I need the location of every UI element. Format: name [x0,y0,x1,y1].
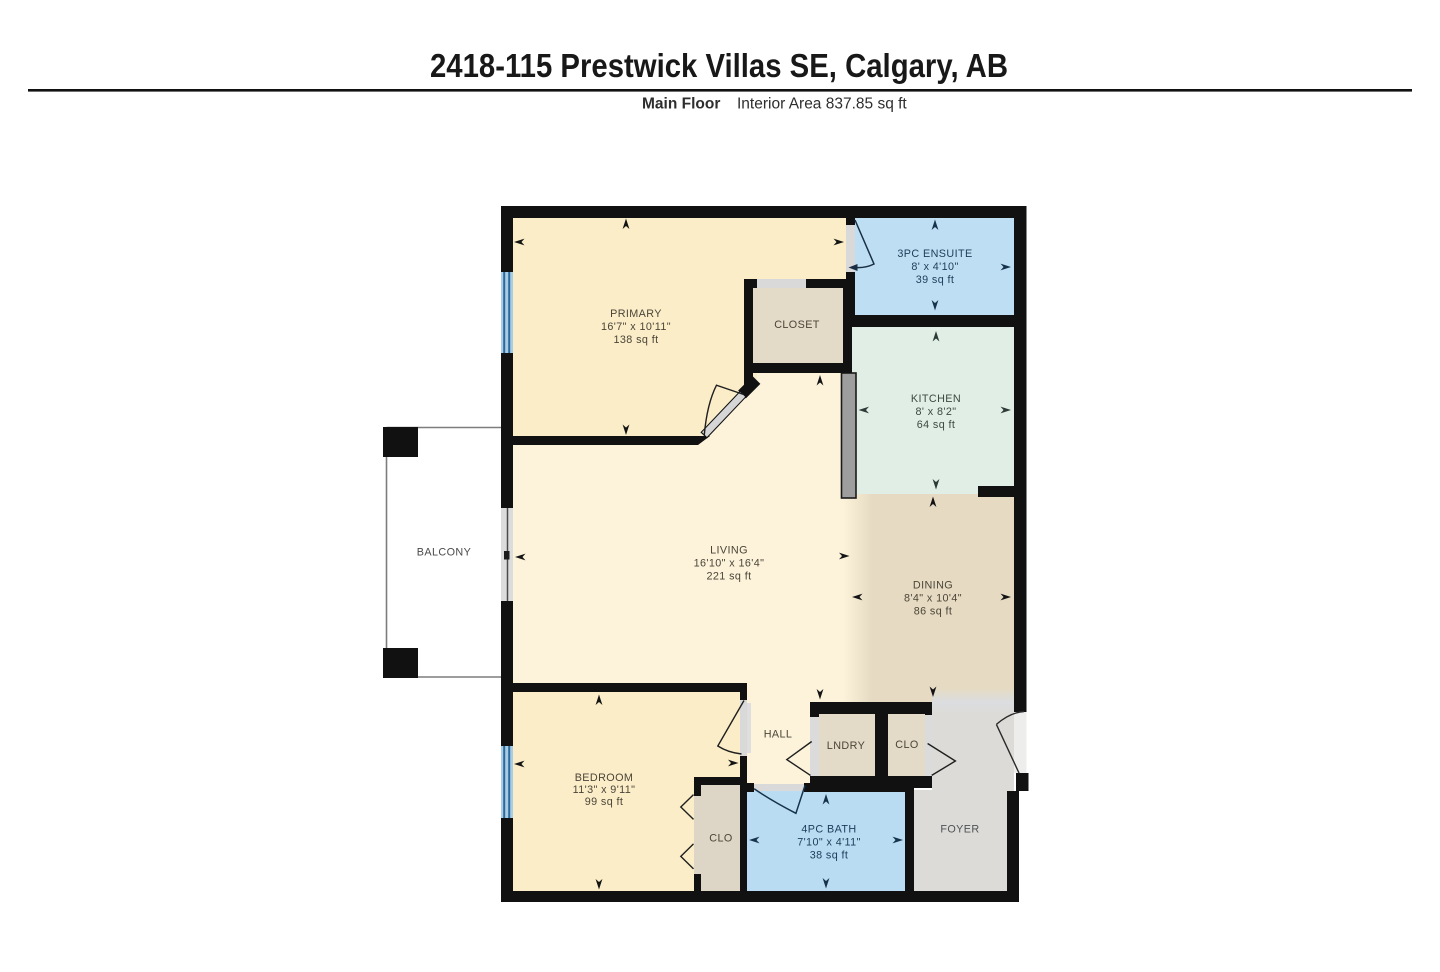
svg-text:BALCONY: BALCONY [417,547,471,559]
svg-text:39 sq ft: 39 sq ft [916,274,955,286]
svg-text:DINING: DINING [913,580,953,592]
svg-text:138 sq ft: 138 sq ft [613,334,658,346]
svg-text:HALL: HALL [764,729,793,741]
svg-text:38 sq ft: 38 sq ft [810,850,849,862]
svg-text:11'3" x 9'11": 11'3" x 9'11" [573,784,636,796]
svg-text:CLO: CLO [709,833,732,845]
svg-text:64 sq ft: 64 sq ft [917,419,956,431]
svg-text:2418-115 Prestwick Villas SE,: 2418-115 Prestwick Villas SE, Calgary, A… [430,47,1008,84]
svg-text:8' x 8'2": 8' x 8'2" [916,406,957,418]
svg-text:BEDROOM: BEDROOM [575,772,634,784]
svg-text:16'10" x 16'4": 16'10" x 16'4" [694,558,765,570]
svg-text:Interior Area 837.85 sq ft: Interior Area 837.85 sq ft [737,96,907,113]
svg-text:FOYER: FOYER [940,824,979,836]
svg-text:CLO: CLO [895,739,918,751]
svg-text:Main Floor: Main Floor [642,96,720,113]
svg-text:7'10" x 4'11": 7'10" x 4'11" [797,837,861,849]
svg-text:3PC ENSUITE: 3PC ENSUITE [897,248,972,260]
svg-text:16'7" x 10'11": 16'7" x 10'11" [601,321,671,333]
svg-text:8' x 4'10": 8' x 4'10" [911,261,958,273]
svg-text:KITCHEN: KITCHEN [911,393,961,405]
svg-text:221 sq ft: 221 sq ft [706,571,751,583]
svg-text:PRIMARY: PRIMARY [610,308,662,320]
svg-text:LIVING: LIVING [710,545,748,557]
svg-text:CLOSET: CLOSET [774,319,820,331]
svg-text:99 sq ft: 99 sq ft [585,796,624,808]
svg-text:8'4" x 10'4": 8'4" x 10'4" [904,593,962,605]
svg-text:4PC BATH: 4PC BATH [801,824,856,836]
svg-text:86 sq ft: 86 sq ft [914,606,953,618]
svg-text:LNDRY: LNDRY [827,740,865,752]
